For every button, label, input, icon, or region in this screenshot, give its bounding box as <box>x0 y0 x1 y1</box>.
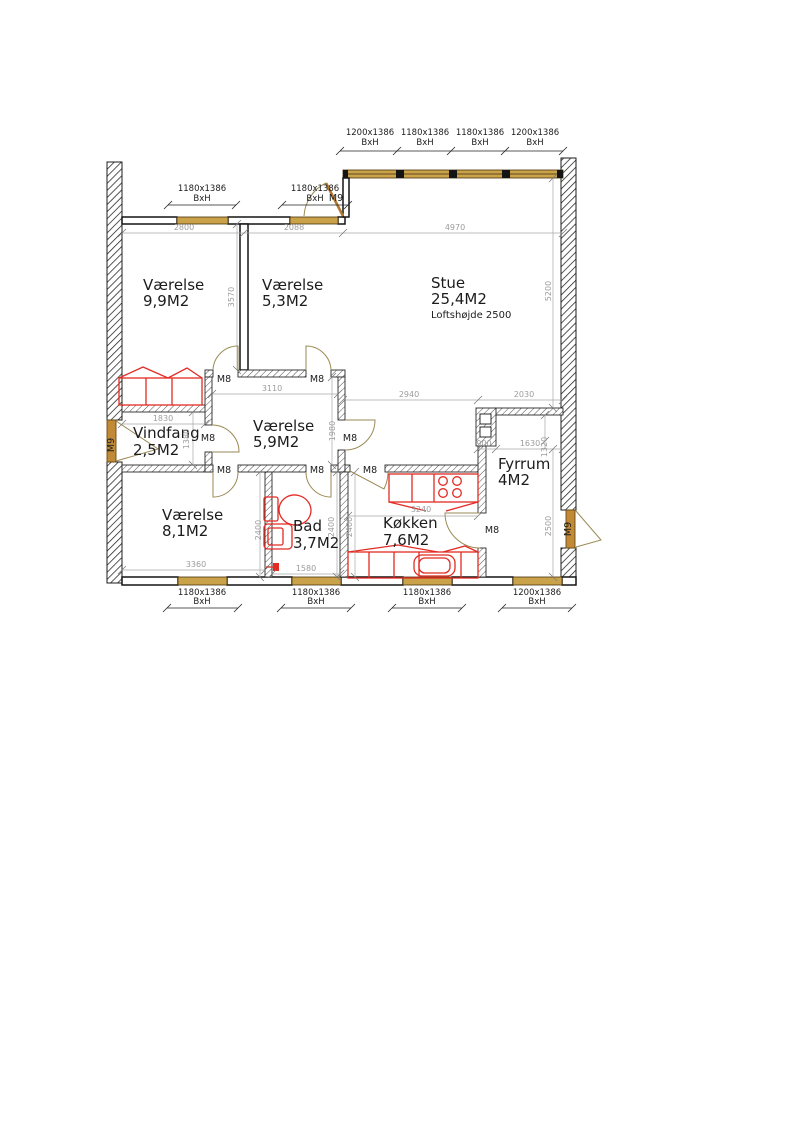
window-label-bh: BxH <box>526 138 543 148</box>
door-label-m8: M8 <box>217 465 231 476</box>
window-label-bh: BxH <box>193 597 210 607</box>
dim-room1-w: 2800 <box>174 223 194 232</box>
left-wall-lower <box>107 462 122 583</box>
door-swing-koekken-fyrrum <box>445 513 480 548</box>
kitchen-sink <box>414 555 455 576</box>
kitchen-counter-bottom <box>348 545 478 578</box>
door-label-m8: M8 <box>217 374 231 385</box>
dim-stue-w: 4970 <box>445 223 465 232</box>
window-label-bh: BxH <box>306 194 323 204</box>
door-label-m8: M8 <box>201 433 215 444</box>
dim-fyrrum-w: 1630 <box>520 439 540 448</box>
stove <box>439 477 462 498</box>
floor-plan-drawing: 1180x1386 BxH 1180x1386 BxH 1200x1386 Bx… <box>0 0 794 1123</box>
dim-fyrrum-niche-h: 1320 <box>540 437 549 457</box>
room-area-vaerelse-99: 9,9M2 <box>143 292 189 310</box>
dim-chimney-w: 900 <box>476 439 491 448</box>
window-label-size: 1180x1386 <box>456 128 504 138</box>
door-swing-fyrrum-right <box>576 511 601 547</box>
stue-window-wall <box>343 170 563 178</box>
dim-bad-w: 1580 <box>296 564 316 573</box>
window-bad <box>292 577 341 585</box>
room-area-vindfang: 2,5M2 <box>133 441 179 459</box>
window-labels: 1180x1386 BxH 1180x1386 BxH 1200x1386 Bx… <box>178 128 561 607</box>
room-area-koekken: 7,6M2 <box>383 531 429 549</box>
dim-fyrrum-top-w: 2030 <box>514 390 534 399</box>
dim-hall-h: 1980 <box>328 421 337 441</box>
door-label-m9-fyrrum: M9 <box>563 522 574 536</box>
window-v81 <box>178 577 227 585</box>
door-swing-hall-room2 <box>306 346 331 370</box>
window-label-bh: BxH <box>528 597 545 607</box>
door-swings <box>107 183 601 548</box>
room-area-vaerelse-53: 5,3M2 <box>262 292 308 310</box>
floor-plan-page: 1180x1386 BxH 1180x1386 BxH 1200x1386 Bx… <box>0 0 794 1123</box>
dim-koekken-h: 2400 <box>345 517 354 537</box>
right-wall-upper <box>561 158 576 510</box>
window-label-bh: BxH <box>307 597 324 607</box>
room-note-stue: Loftshøjde 2500 <box>431 310 511 321</box>
window-label-bh: BxH <box>416 138 433 148</box>
door-swing-hall-room1 <box>213 346 238 370</box>
window-label-size: 1180x1386 <box>401 128 449 138</box>
wall-fyrrum-top <box>495 408 563 415</box>
dim-rooms-h: 3570 <box>227 287 236 307</box>
dim-fyrrum-h: 2500 <box>544 516 553 536</box>
dim-room2-w: 2088 <box>284 223 304 232</box>
wall-room1-room2 <box>240 224 248 370</box>
room-name-koekken: Køkken <box>383 514 438 532</box>
door-label-m8: M8 <box>343 433 357 444</box>
dim-vindfang-h: 1380 <box>182 429 191 449</box>
room-area-stue: 25,4M2 <box>431 290 487 308</box>
room-area-vaerelse-59: 5,9M2 <box>253 433 299 451</box>
left-wall-upper <box>107 162 122 420</box>
top-wall-left-rooms <box>122 217 345 224</box>
dim-v81-w: 3360 <box>186 560 206 569</box>
window-label-size: 1200x1386 <box>511 128 559 138</box>
dim-vindfang-w: 1830 <box>153 414 173 423</box>
dim-stue-h: 5200 <box>544 281 553 301</box>
room-name-bad: Bad <box>293 517 322 535</box>
dim-hall-w: 3110 <box>262 384 282 393</box>
room-area-vaerelse-81: 8,1M2 <box>162 522 208 540</box>
window-label-size: 1180x1386 <box>178 184 226 194</box>
dim-bad-h: 2400 <box>327 517 336 537</box>
window-label-size: 1200x1386 <box>346 128 394 138</box>
window-label-bh: BxH <box>193 194 210 204</box>
wall-stub-m9 <box>343 178 349 217</box>
dim-koekken-w: 3240 <box>411 505 431 514</box>
dim-stue-lower-w: 2940 <box>399 390 419 399</box>
window-label-bh: BxH <box>471 138 488 148</box>
door-label-m9-entrance: M9 <box>106 438 117 452</box>
door-label-m8: M8 <box>310 374 324 385</box>
door-label-m8: M8 <box>485 525 499 536</box>
wardrobe <box>119 367 202 405</box>
window-label-bh: BxH <box>361 138 378 148</box>
dim-v81-h: 2400 <box>254 520 263 540</box>
door-label-m8: M8 <box>310 465 324 476</box>
window-label-bh: BxH <box>418 597 435 607</box>
door-label-m8: M8 <box>363 465 377 476</box>
door-label-m9-stue: M9 <box>329 193 343 204</box>
room-area-fyrrum: 4M2 <box>498 471 530 489</box>
door-swing-vindfang-hall <box>212 425 239 452</box>
kitchen-counter-top <box>389 474 478 511</box>
